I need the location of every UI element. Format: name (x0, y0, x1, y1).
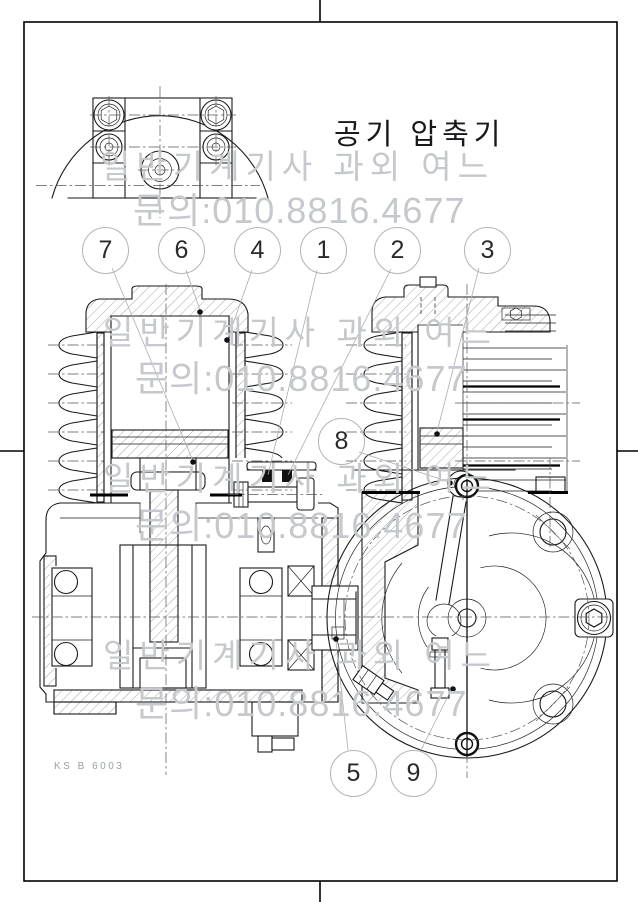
front-section-view (40, 286, 358, 752)
part-balloon-8: 8 (318, 418, 365, 465)
part-balloon-6: 6 (158, 227, 205, 274)
part-balloon-9: 9 (390, 750, 437, 797)
drawing-sheet: 공기 압축기 일반기계기사 과외 여느 문의:010.8816.4677 일반기… (0, 0, 638, 902)
part-balloon-4: 4 (234, 227, 281, 274)
part-balloon-5: 5 (330, 750, 377, 797)
part-balloon-7: 7 (82, 227, 129, 274)
part-balloon-3: 3 (464, 227, 511, 274)
part-balloon-1: 1 (300, 227, 347, 274)
standard-code: KS B 6003 (54, 761, 124, 772)
side-section-view (327, 277, 613, 758)
part-balloon-2: 2 (374, 227, 421, 274)
drawing-title: 공기 압축기 (334, 111, 505, 153)
